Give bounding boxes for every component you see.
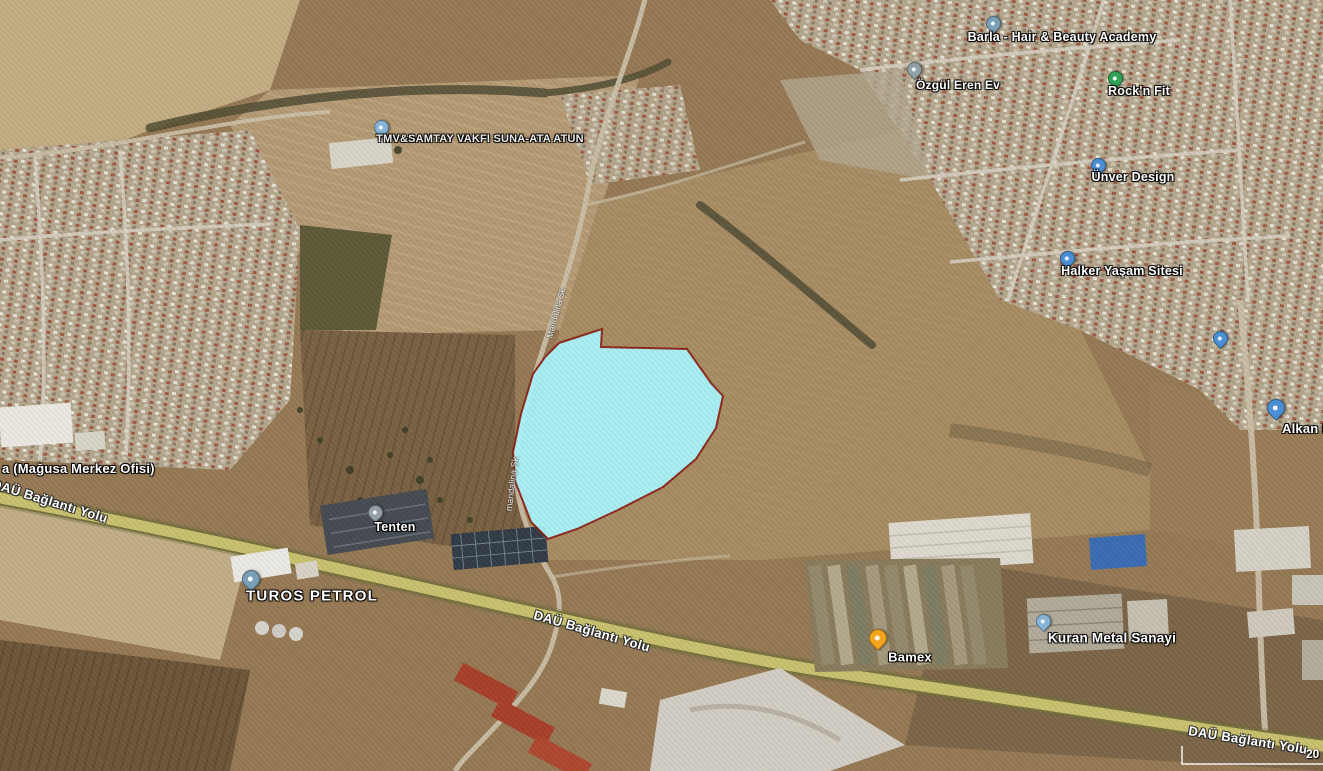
place-label-kuran-metal[interactable]: Kuran Metal Sanayi [1048,631,1176,646]
terrain-layer [0,0,1323,771]
place-label-turos-petrol[interactable]: TUROS PETROL [246,588,378,605]
place-label-magusa-merkez[interactable]: a (Mağusa Merkez Ofisi) [2,461,155,476]
place-label-alkan[interactable]: Alkan M [1282,421,1323,436]
place-label-tmv-vakfi[interactable]: TMV&SAMTAY VAKFI SUNA-ATA ATUN [376,133,584,145]
place-label-barla[interactable]: Barla - Hair & Beauty Academy [968,30,1157,44]
place-label-rocknfit[interactable]: Rock'n Fit [1108,84,1170,98]
place-label-halker[interactable]: Halker Yaşam Sitesi [1061,264,1183,278]
place-label-unver[interactable]: Ünver Design [1092,170,1175,184]
place-label-tenten[interactable]: Tenten [374,520,415,534]
satellite-map[interactable]: Barla - Hair & Beauty Academy Özgül Eren… [0,0,1323,771]
scale-text: 20 [1306,747,1319,761]
place-label-bamex[interactable]: Bamex [888,650,932,665]
place-label-ozgul[interactable]: Özgül Eren Ev [916,78,1000,92]
